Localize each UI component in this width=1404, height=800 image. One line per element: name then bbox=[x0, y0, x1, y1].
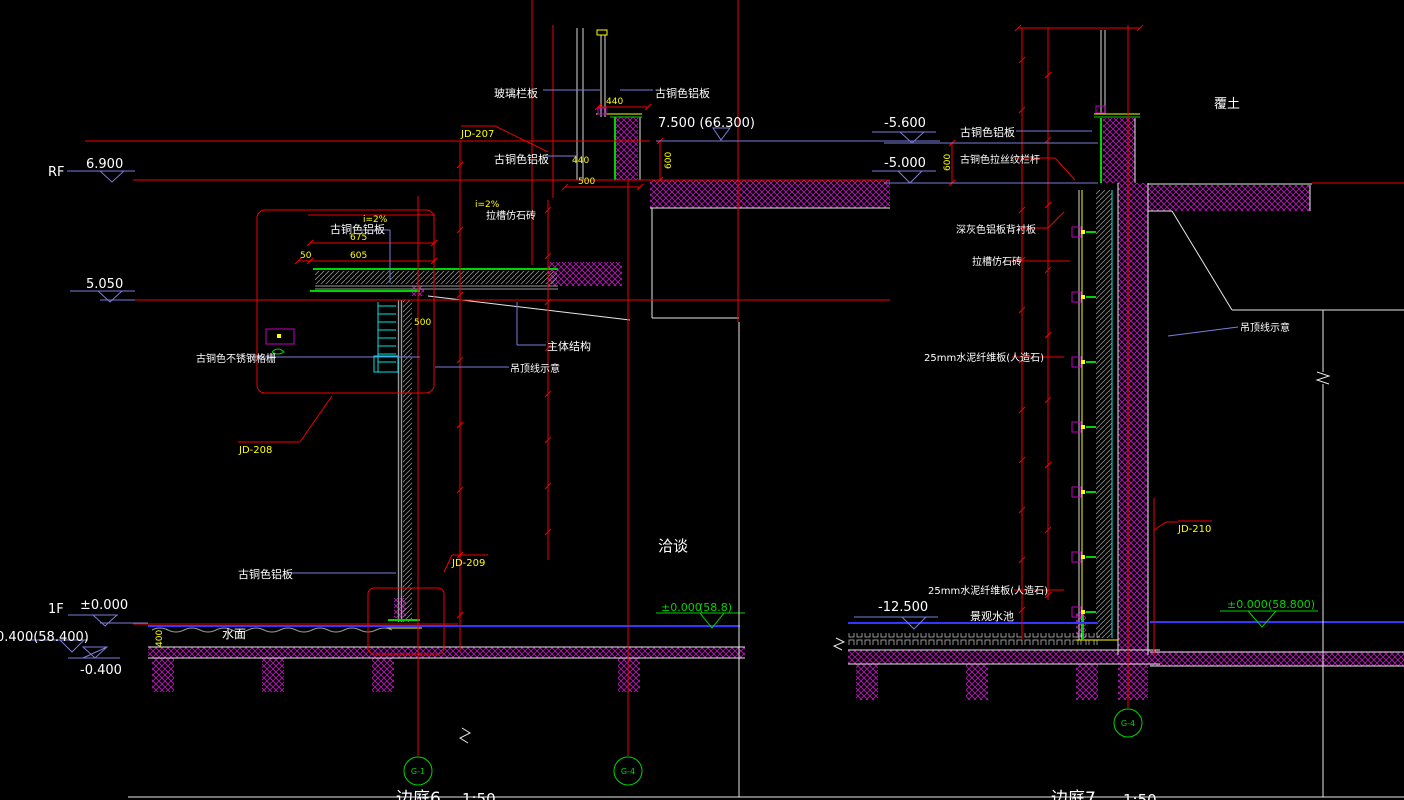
view-scale: 1:50 bbox=[1123, 791, 1157, 800]
level-marker-5050: 5.050 bbox=[70, 277, 135, 302]
level-marker-rf: RF 6.900 bbox=[48, 157, 135, 182]
label-bronze-railing: 古铜色拉丝纹栏杆 bbox=[960, 153, 1040, 166]
slope-label: i=2% bbox=[475, 200, 500, 210]
level-tag: 1F bbox=[48, 602, 64, 617]
right-view-caption: 边庭7 1:50 bbox=[1051, 789, 1157, 800]
dim-value: 400 bbox=[155, 630, 165, 647]
level-marker-water: 0.400(58.400) bbox=[0, 630, 89, 652]
detail-ref: JD-210 bbox=[1177, 524, 1211, 535]
grid-bubble-g4-right: G-4 bbox=[1114, 709, 1142, 737]
label-grille: 古铜色不锈钢格栅 bbox=[196, 352, 276, 365]
view-scale: 1:50 bbox=[462, 790, 496, 800]
panel-brackets bbox=[1072, 227, 1096, 617]
level-marker-neg400: -0.400 bbox=[68, 647, 122, 678]
break-symbol bbox=[460, 728, 470, 743]
elevation-value: -0.400 bbox=[80, 663, 122, 678]
grid-bubble-g4: G-4 bbox=[614, 757, 642, 785]
level-marker-1f: 1F ±0.000 bbox=[48, 598, 148, 626]
break-symbol bbox=[1317, 372, 1329, 384]
elevation-value: 5.050 bbox=[86, 277, 123, 292]
view-title: 边庭7 bbox=[1051, 789, 1096, 800]
grid-bubble-label: G-1 bbox=[411, 767, 425, 776]
right-dimension-lines bbox=[949, 25, 1404, 708]
left-section-view: RF 6.900 5.050 7.500 (66.300) 1F ±0.000 … bbox=[0, 0, 940, 800]
steel-bracket bbox=[374, 302, 398, 372]
label-water-surface: 水面 bbox=[222, 627, 246, 641]
section-drawing: RF 6.900 5.050 7.500 (66.300) 1F ±0.000 … bbox=[0, 0, 1404, 800]
elevation-value: ±0.000 bbox=[80, 598, 128, 613]
left-structure-lines bbox=[148, 28, 890, 743]
elevation-value: ±0.000 bbox=[661, 601, 702, 614]
room-label: 洽谈 bbox=[658, 537, 688, 555]
left-hatched-regions bbox=[148, 117, 890, 692]
pool-bottom-texture bbox=[848, 633, 1100, 645]
label-bronze-panel: 古铜色铝板 bbox=[238, 567, 293, 581]
label-fiber-board: 25mm水泥纤维板(人造石) bbox=[924, 351, 1044, 364]
break-symbol bbox=[834, 638, 844, 650]
detail-ref: JD-208 bbox=[238, 445, 272, 456]
elevation-note: (58.800) bbox=[1268, 598, 1315, 611]
level-marker-zero-left: ±0.000 (58.8) bbox=[656, 601, 745, 628]
label-landscape-pool: 景观水池 bbox=[970, 610, 1014, 623]
water-wave-line bbox=[152, 628, 392, 632]
elevation-value: 0.400(58.400) bbox=[0, 630, 89, 645]
detail-ref: JD-209 bbox=[451, 558, 485, 569]
label-bronze-panel: 古铜色铝板 bbox=[494, 152, 549, 166]
elevation-note: (58.8) bbox=[699, 601, 732, 614]
elevation-value: ±0.000 bbox=[1227, 598, 1268, 611]
dim-value: 675 bbox=[350, 233, 367, 243]
detail-ref: JD-207 bbox=[460, 129, 494, 140]
cad-canvas: RF 6.900 5.050 7.500 (66.300) 1F ±0.000 … bbox=[0, 0, 1404, 800]
grid-bubble-label: G-4 bbox=[1121, 719, 1135, 728]
label-bronze-panel: 古铜色铝板 bbox=[960, 125, 1015, 139]
grid-bubble-g1: G-1 bbox=[404, 757, 432, 785]
label-earth-fill: 覆土 bbox=[1214, 97, 1240, 112]
label-stone-paving: 拉槽仿石砖 bbox=[486, 209, 536, 222]
left-view-caption: 边庭6 1:50 bbox=[396, 789, 496, 800]
label-stone-paving: 拉槽仿石砖 bbox=[972, 255, 1022, 268]
dim-value: 500 bbox=[414, 318, 431, 328]
dim-value: 50 bbox=[300, 251, 312, 261]
dim-value: 500 bbox=[578, 177, 595, 187]
dim-value: 605 bbox=[350, 251, 367, 261]
elevation-value: -5.000 bbox=[884, 156, 926, 171]
right-hatched-regions bbox=[848, 118, 1404, 700]
elevation-value: 6.900 bbox=[86, 157, 123, 172]
label-structure: 主体结构 bbox=[547, 339, 591, 353]
dim-value: 440 bbox=[606, 97, 623, 107]
elevation-value: 7.500 (66.300) bbox=[658, 116, 755, 131]
dim-value: 440 bbox=[572, 156, 589, 166]
level-marker-neg12500: -12.500 bbox=[854, 600, 938, 629]
label-gray-backing-panel: 深灰色铝板背衬板 bbox=[956, 223, 1036, 236]
elevation-value: -5.600 bbox=[884, 116, 926, 131]
elevation-value: -12.500 bbox=[878, 600, 928, 615]
slope-label: i=2% bbox=[363, 215, 388, 225]
label-fiber-board: 25mm水泥纤维板(人造石) bbox=[928, 584, 1048, 597]
dim-value: 600 bbox=[943, 154, 953, 171]
label-bronze-panel: 古铜色铝板 bbox=[655, 86, 710, 100]
railing-cap bbox=[597, 30, 607, 35]
label-glass-railing: 玻璃栏板 bbox=[494, 86, 538, 100]
label-ceiling-line: 吊顶线示意 bbox=[1240, 321, 1290, 334]
left-leader-lines bbox=[248, 90, 653, 573]
label-ceiling-line: 吊顶线示意 bbox=[510, 362, 560, 375]
viewport-borders bbox=[128, 310, 1404, 797]
level-tag: RF bbox=[48, 165, 65, 180]
dim-value: 600 bbox=[664, 152, 674, 169]
left-dimension-lines bbox=[85, 0, 890, 756]
view-title: 边庭6 bbox=[396, 789, 441, 800]
grid-bubble-label: G-4 bbox=[621, 767, 635, 776]
